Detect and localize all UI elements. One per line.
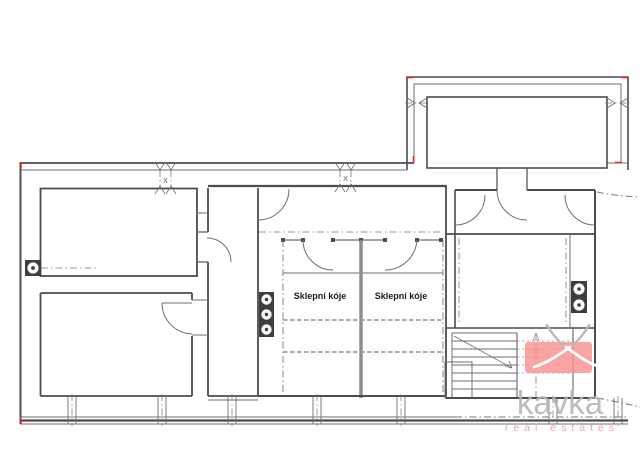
door-arc-bottom-left-room	[162, 303, 192, 334]
lightwell-x-label-right: X	[343, 176, 348, 183]
door-arc-corridor-top	[258, 189, 289, 220]
door-arc-cubicle-left	[303, 240, 333, 270]
window-symbol-annex-right	[605, 98, 630, 108]
stair-landing	[445, 362, 472, 398]
door-arc-vestibule-left	[455, 195, 485, 225]
door-arc-top-left-room	[207, 238, 231, 262]
left-wall-pipe-shaft-icon	[25, 260, 96, 276]
bottom-left-room	[41, 293, 193, 396]
top-left-room	[41, 189, 198, 277]
storage-label-left: Sklepní kóje	[294, 291, 347, 301]
kavka-tagline-text: real estates	[505, 422, 619, 434]
lightwell-x-label-left: X	[163, 178, 168, 185]
door-arc-annex	[497, 190, 527, 220]
pipe-shaft-double-icon	[571, 281, 587, 313]
window-symbol-annex-left	[405, 98, 429, 108]
door-arc-vestibule-right	[565, 195, 595, 225]
top-right-annex	[405, 77, 630, 220]
pipe-shaft-triple-icon	[259, 292, 274, 337]
floor-plan-canvas: X X Sklepní kóje Sk	[0, 0, 640, 453]
stair-treads-lower	[452, 333, 517, 389]
lightwell-symbol-right: X	[335, 162, 356, 192]
kavka-brand-text: kavka	[517, 384, 604, 421]
terrain-lines	[597, 192, 640, 407]
storage-label-right: Sklepní kóje	[375, 291, 428, 301]
door-arc-cubicle-right	[385, 240, 417, 270]
storage-cubicle-area: Sklepní kóje Sklepní kóje	[258, 185, 446, 398]
floor-plan-drawing: X X Sklepní kóje Sk	[0, 0, 640, 453]
